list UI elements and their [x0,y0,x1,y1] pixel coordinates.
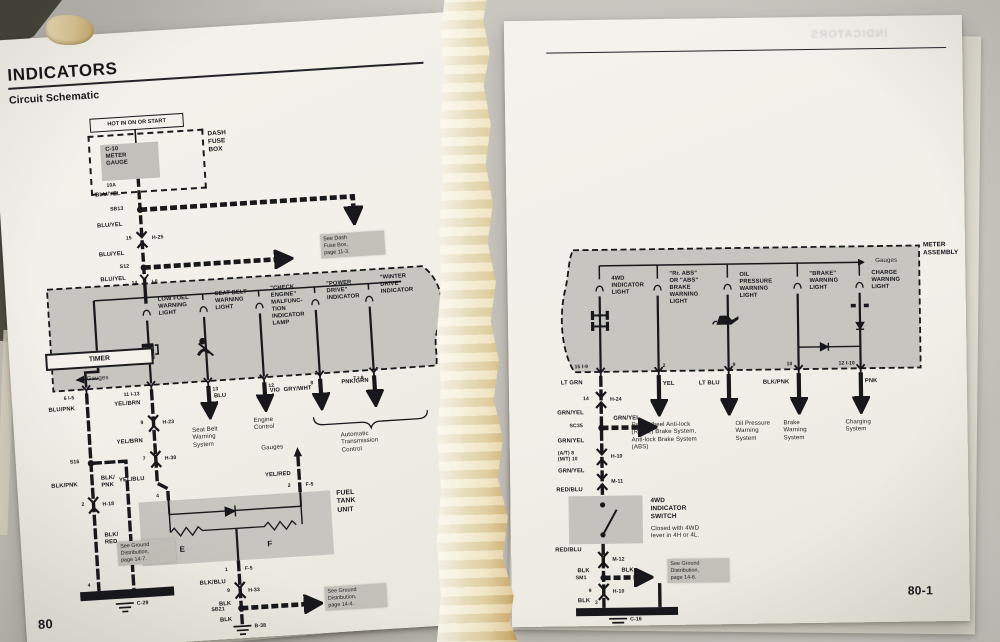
splice-label: S12 [120,264,130,271]
right-schematic-lines [504,15,970,627]
wire-label: LT GRN [561,380,583,387]
wire-label: YEL [663,381,675,388]
see-ground-note: See Ground Distribution, page 14-4. [324,583,387,611]
connector-pin: 9 [589,588,592,594]
wire-label: GRN/YEL [558,438,585,445]
connector-pin: 2 [81,502,84,508]
lamp-label: 4WD INDICATOR LIGHT [611,275,644,297]
photo-of-manual-pages: INDICATORS Circuit Schematic HOT IN ON O… [0,0,1000,642]
gauges-label: Gauges [875,257,897,265]
connector-label: H-23 [162,419,174,426]
connector-label: H-10 [613,589,625,596]
connector-label: H-30 [165,455,177,462]
band-pin: 12 I-10 [839,360,855,366]
ground-id: C-16 [630,616,642,623]
ground-id: C-29 [137,600,149,607]
see-dash-fuse-note: See Dash Fuse Box, page 11-3. [320,231,385,259]
wire-label: BLK [621,567,633,574]
lamp-label: "WINTER DRIVE" INDICATOR [380,273,414,296]
4wd-switch-label: 4WD INDICATOR SWITCH [650,497,686,521]
lamp-label: "CHECK ENGINE" MALFUNC- TION INDICATOR L… [270,284,305,328]
wire-label: RED/BLU [556,487,583,494]
dash-fuse-box-label: DASH FUSE BOX [207,129,227,154]
right-page: INDICATORS METER ASSEMBLY Gauges 4WD IND… [504,15,970,627]
lamp-label: LOW FUEL WARNING LIGHT [158,295,190,318]
connector-pin: 14 [583,396,589,402]
wire-label: BLK [220,617,233,625]
connector-label: F-5 [245,565,253,572]
ground-pin: 3 [595,600,598,606]
connector-label: H-25 [152,234,164,241]
wire-label: BLK [578,598,590,605]
connector-label: H-18 [102,501,114,508]
wire-label: BLK/PNK [763,379,790,386]
ground-pin: 4 [87,583,90,589]
splice-label: SC35 [569,423,582,430]
torn-paper-notch [46,15,94,45]
connector-pin: (A/T) 8 (M/T) 10 [558,450,578,462]
system-label: Charging System [845,418,871,433]
connector-label: H-33 [248,587,260,594]
lamp-label: SEAT BELT WARNING LIGHT [214,289,248,312]
left-page: INDICATORS Circuit Schematic HOT IN ON O… [0,12,483,642]
connector-pin: 9 [227,588,230,594]
system-label: Oil Pressure Warning System [735,420,770,443]
wire-label: PNK [865,378,878,385]
fuse-amps: 10A [106,182,116,189]
connector-pin: 9 [140,420,143,426]
band-pin: 10 [787,361,793,367]
connector-label: H-24 [610,397,622,404]
band-pin: 9 [733,362,736,368]
connector-pin: 7 [143,456,146,462]
fuel-tank-unit-label: FUEL TANK UNIT [336,489,356,515]
wire-label: RED/BLU [555,547,582,554]
connector-label: F-5 [306,481,314,488]
left-schematic-lines [0,12,483,642]
wire-label: VIO [270,387,281,395]
lamp-label: "POWER DRIVE" INDICATOR [326,279,360,302]
wire-label: BLK/ PNK [101,475,116,490]
system-label: Brake Warning System [783,419,806,442]
4wd-switch-desc: Closed with 4WD lever in 4H or 4L. [651,525,699,541]
band-pin: 11 I-13 [124,391,140,398]
connector-label: H-10 [611,454,623,461]
ftu-terminal-e: E [179,545,185,555]
lamp-label: "BRAKE" WARNING LIGHT [809,271,838,293]
fuse-name: C-10 METER GAUGE [105,145,128,168]
lamp-label: CHARGE WARNING LIGHT [871,270,900,292]
splice-label: S16 [70,459,80,466]
system-label: Seat Belt Warning System [192,425,219,449]
band-entry-pin: 14 [132,280,138,286]
wire-label: GRN/YEL [557,410,584,417]
system-label: Automatic Transmission Control [340,429,379,454]
see-ground-note: See Ground Distribution, page 14-6. [667,558,729,583]
gauges-label: Gauges [86,374,108,383]
page-number: 80-1 [908,583,933,598]
splice-label: SB21 [211,606,225,613]
connector-label: M-11 [611,479,623,486]
connector-label: M-12 [612,557,624,564]
lamp-label: "Rr. ABS" OR "ABS" BRAKE WARNING LIGHT [669,271,698,307]
4wd-switch-box [568,495,643,544]
band-pin: 6 I-5 [64,395,75,402]
splice-label: SB13 [110,206,124,213]
connector-pin: 2 [288,483,291,489]
band-pin: 2 [663,363,666,369]
wire-label: GRN/YEL [558,468,585,475]
splice-label: SM1 [576,575,587,581]
wire-label: BLU [214,393,227,401]
ftu-pin: 4 [156,493,159,499]
gauges-label: Gauges [261,443,283,452]
system-label: Rear Wheel Anti-lock (RWAL) Brake System… [631,421,697,452]
connector-pin: 1 [225,567,228,573]
see-ground-note: See Ground Distribution, page 14-7. [117,538,176,566]
page-number: 80 [38,616,54,633]
band-pin: 15 I-9 [575,364,588,370]
connector-pin: 15 [126,235,132,241]
system-label: Engine Control [253,416,274,432]
wire-label: LT BLU [699,380,720,387]
ground-id: B-38 [254,623,266,630]
bleed-through-title: INDICATORS [810,28,888,41]
lamp-label: OIL PRESSURE WARNING LIGHT [739,272,772,301]
meter-assembly-label: METER ASSEMBLY [923,241,958,257]
band-pin: 13 [212,386,218,392]
ftu-terminal-f: F [267,539,273,549]
band-entry-conn: I-8 [152,279,159,285]
